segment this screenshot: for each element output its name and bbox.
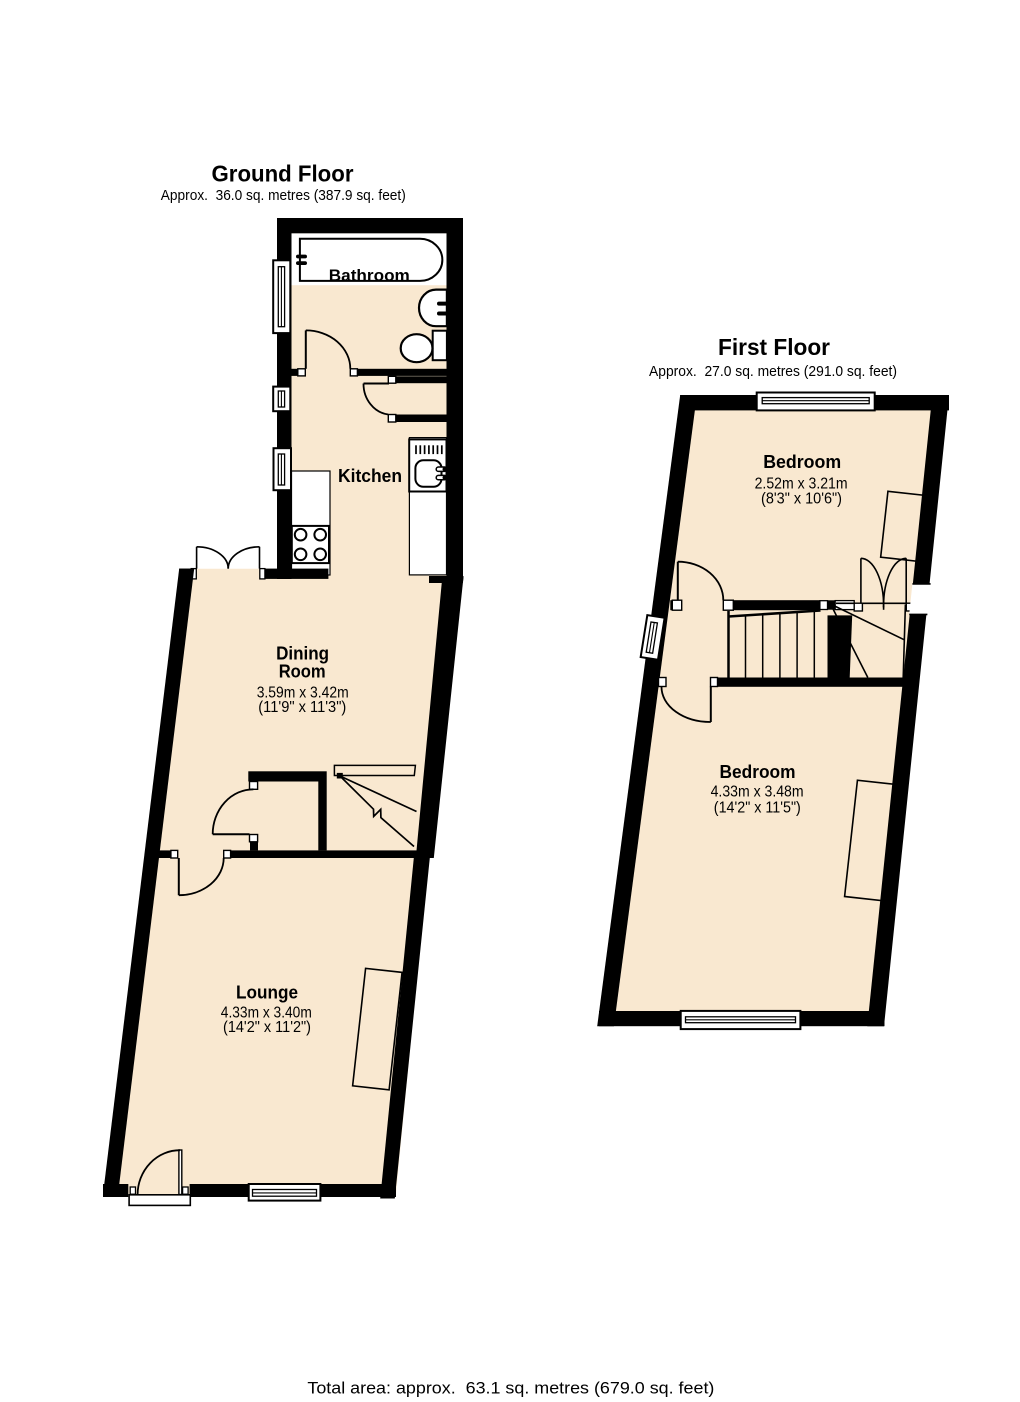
svg-text:Bedroom: Bedroom [763, 451, 841, 472]
svg-text:(14'2" x 11'5"): (14'2" x 11'5") [714, 800, 801, 817]
svg-text:First Floor: First Floor [718, 334, 830, 360]
svg-text:Bathroom: Bathroom [329, 266, 410, 285]
svg-text:Lounge: Lounge [236, 982, 298, 1003]
svg-text:Bedroom: Bedroom [720, 761, 796, 782]
svg-text:Approx. 27.0 sq. metres (291.: Approx. 27.0 sq. metres (291.0 sq. feet) [649, 363, 897, 380]
svg-text:Room: Room [279, 661, 326, 682]
svg-text:Total area: approx. 63.1 sq.: Total area: approx. 63.1 sq. metres (679… [307, 1380, 714, 1398]
svg-text:Ground Floor: Ground Floor [212, 161, 354, 187]
svg-text:(8'3" x 10'6"): (8'3" x 10'6") [761, 491, 842, 508]
svg-text:Approx. 36.0 sq. metres (387.: Approx. 36.0 sq. metres (387.9 sq. feet) [161, 187, 406, 204]
svg-text:4.33m x 3.48m: 4.33m x 3.48m [711, 784, 804, 801]
svg-text:(14'2" x 11'2"): (14'2" x 11'2") [223, 1019, 311, 1036]
svg-text:Kitchen: Kitchen [338, 466, 402, 486]
svg-text:(11'9" x 11'3"): (11'9" x 11'3") [258, 699, 346, 716]
